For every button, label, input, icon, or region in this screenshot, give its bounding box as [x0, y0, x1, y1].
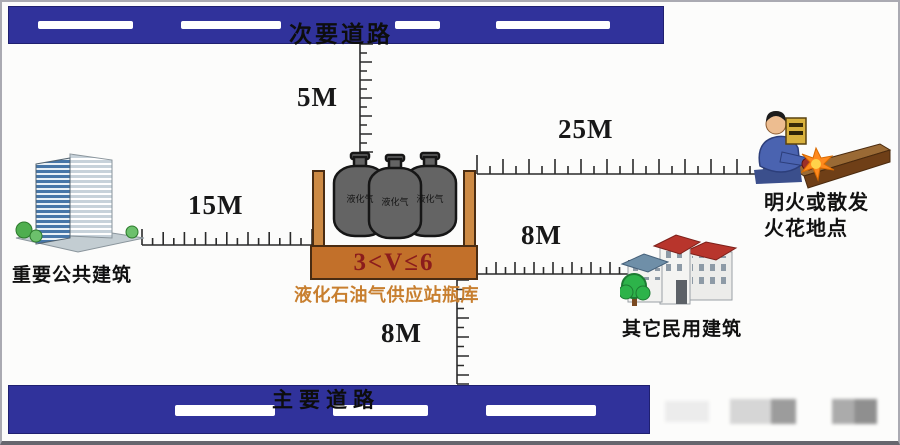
distance-to-flame-site: 25M — [558, 114, 613, 145]
cylinder-label: 液化气 — [416, 193, 443, 204]
cylinder-label: 液化气 — [381, 196, 408, 207]
flame-site-label-line1: 明火或散发 — [764, 190, 869, 216]
container-base: 3<V≤6 — [310, 245, 478, 280]
lane-marking — [496, 21, 610, 29]
gas-cylinders-illustration: 液化气 液化气 液化气 — [322, 150, 468, 242]
volume-range-label: 3<V≤6 — [353, 249, 434, 277]
watermark-block — [665, 401, 709, 422]
distance-to-secondary-road: 5M — [297, 82, 338, 113]
lane-marking — [486, 405, 596, 416]
cylinder-label: 液化气 — [346, 193, 373, 204]
station-name-label: 液化石油气供应站瓶库 — [294, 281, 504, 307]
watermark-block — [832, 399, 877, 424]
watermark-block — [730, 399, 796, 424]
main-road-label: 主要道路 — [272, 384, 380, 414]
lane-marking — [175, 405, 275, 416]
flame-site-label: 明火或散发 火花地点 — [764, 190, 869, 242]
safety-distance-diagram: 次要道路 主要道路 5M 15M 25M 8M 8M 3<V≤6 液化石油气供应… — [0, 0, 900, 445]
distance-to-main-road: 8M — [381, 318, 422, 349]
lane-marking — [181, 21, 281, 29]
flame-site-label-line2: 火花地点 — [764, 216, 869, 242]
lane-marking — [38, 21, 133, 29]
civil-building-illustration — [620, 222, 745, 314]
secondary-road-label: 次要道路 — [289, 15, 393, 49]
distance-to-public-building: 15M — [188, 190, 243, 221]
distance-to-civil-building: 8M — [521, 220, 562, 251]
public-building-label: 重要公共建筑 — [12, 260, 132, 287]
lane-marking — [395, 21, 440, 29]
civil-building-label: 其它民用建筑 — [622, 314, 742, 341]
public-building-illustration — [14, 150, 149, 262]
flame-worksite-illustration — [742, 104, 892, 196]
